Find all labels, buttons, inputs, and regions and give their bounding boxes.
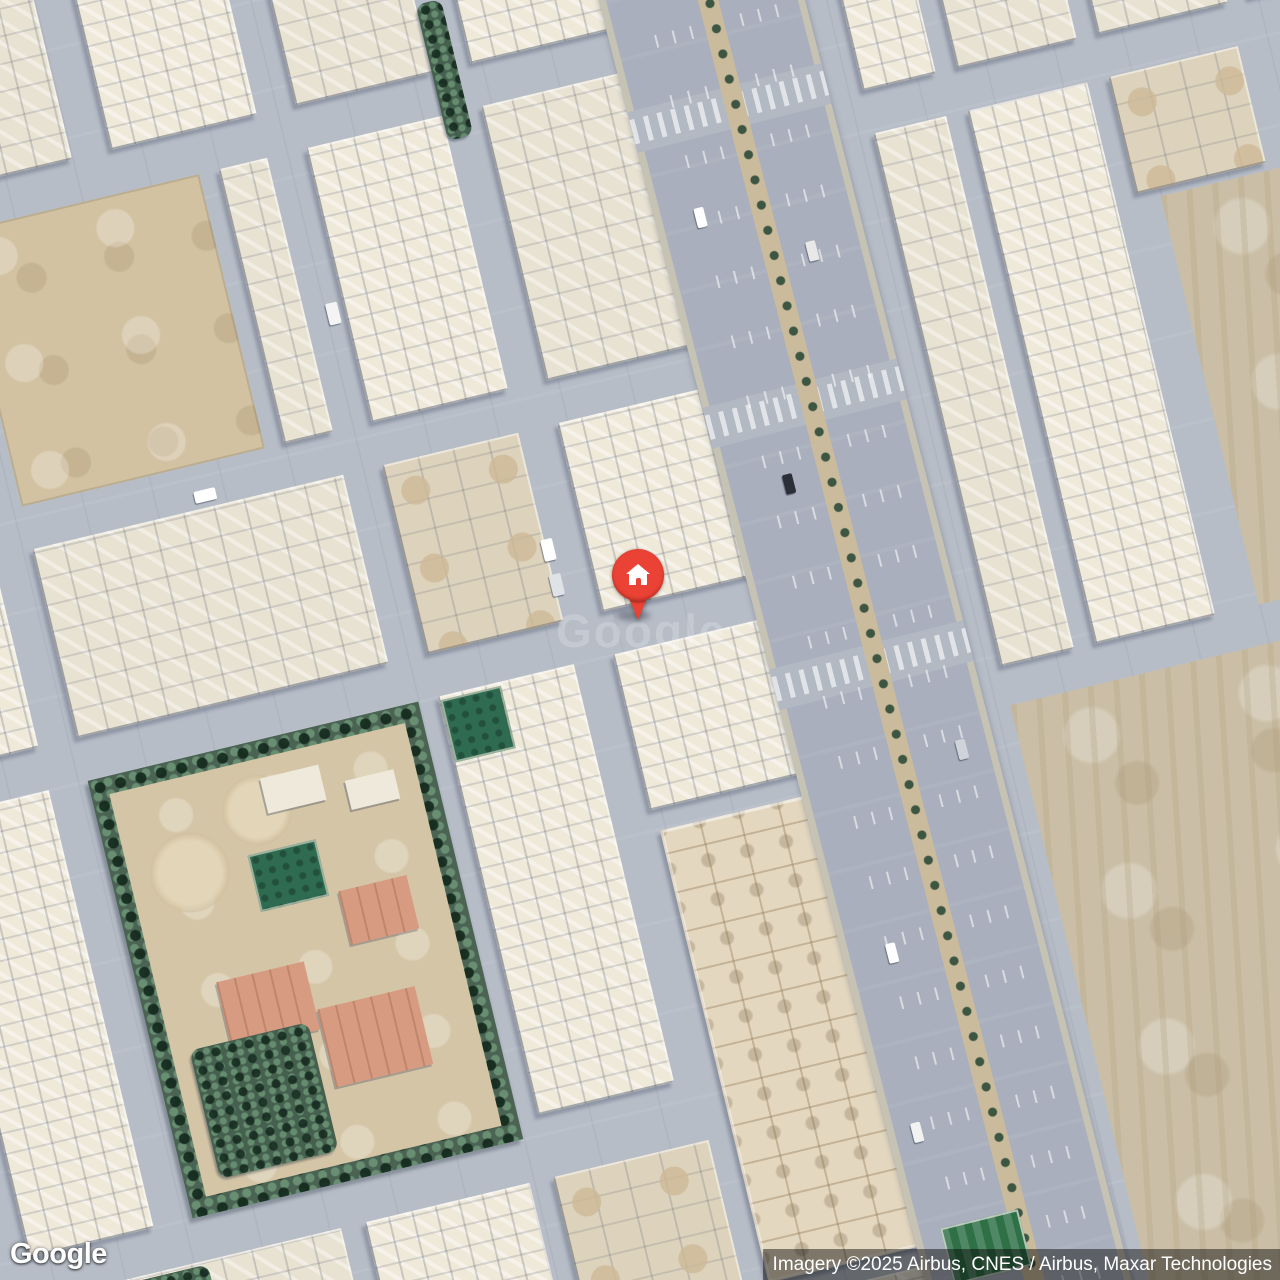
satellite-imagery-layer [0, 0, 1280, 1280]
vacant-sand-lot [0, 174, 265, 507]
city-block [60, 0, 257, 150]
palm-grove [189, 1022, 338, 1179]
car [910, 1121, 925, 1143]
attribution-text: Imagery ©2025 Airbus, CNES / Airbus, Max… [773, 1254, 1272, 1276]
car [693, 207, 708, 229]
city-block [32, 475, 388, 738]
city-block [382, 433, 563, 654]
attribution-bar: Imagery ©2025 Airbus, CNES / Airbus, Max… [763, 1249, 1280, 1280]
location-pin-marker[interactable] [612, 549, 664, 601]
city-block [0, 0, 72, 190]
terracotta-roof-building [317, 986, 433, 1087]
city-block [1109, 46, 1266, 194]
farm-building [345, 769, 401, 810]
city-block [306, 116, 508, 423]
car [193, 487, 217, 504]
car [885, 942, 900, 964]
garden-pool [247, 839, 329, 912]
car [325, 301, 342, 325]
terracotta-roof-building [338, 875, 419, 945]
car [955, 738, 970, 760]
farm-building [260, 765, 327, 814]
home-icon-door [636, 578, 641, 585]
google-logo[interactable]: Google [10, 1238, 107, 1271]
car [782, 473, 797, 495]
city-block [245, 0, 432, 106]
sand-circle [142, 824, 238, 920]
farm-interior [109, 723, 501, 1197]
map-viewport[interactable]: Google Google Imagery ©2025 Airbus, CNES… [0, 0, 1280, 1280]
home-icon [625, 562, 651, 588]
